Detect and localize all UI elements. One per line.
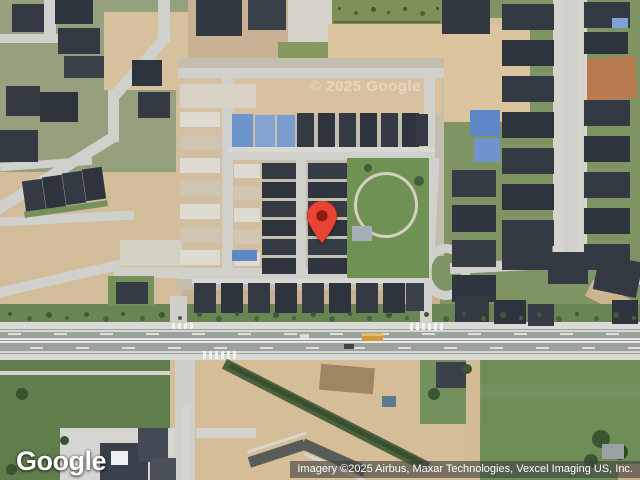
tree	[311, 312, 316, 317]
vehicle	[300, 334, 309, 338]
construction-slab	[234, 230, 260, 244]
street-segment	[196, 428, 256, 438]
townhouse-roof	[308, 258, 348, 274]
tree	[500, 312, 506, 318]
house-roof	[383, 283, 405, 313]
house-roof	[116, 282, 148, 304]
crosswalk-stripe	[440, 323, 443, 330]
curb-line	[182, 406, 189, 480]
crosswalk-stripe	[172, 323, 175, 329]
townhouse-roof	[318, 113, 335, 147]
tree	[16, 388, 28, 400]
vehicle	[344, 344, 354, 349]
tree	[414, 176, 424, 186]
townhouse-roof	[381, 113, 398, 147]
curb-line	[0, 371, 170, 375]
tree	[436, 7, 439, 10]
house-roof	[248, 283, 270, 313]
townhouse-roof	[308, 182, 348, 198]
townhouse-roof	[416, 114, 428, 146]
construction-slab	[180, 181, 220, 196]
house-roof	[58, 28, 100, 54]
tree	[481, 316, 486, 321]
tree	[428, 388, 440, 400]
field-stripe	[480, 384, 640, 398]
house-roof	[138, 92, 170, 118]
house-roof	[452, 170, 496, 197]
lane-dash	[30, 347, 43, 349]
building-roof	[150, 458, 176, 480]
lane-dash	[214, 347, 227, 349]
house-roof	[502, 112, 554, 138]
townhouse-roof	[262, 182, 296, 198]
lane-dash	[536, 347, 549, 349]
house-roof	[6, 86, 40, 116]
construction-slab	[234, 208, 260, 222]
brown-patch	[319, 364, 375, 395]
house-roof	[452, 240, 496, 267]
lane-center-line	[0, 338, 640, 340]
driveway-strip	[553, 0, 564, 256]
driveway-strip	[228, 147, 434, 152]
crosswalk-stripe	[422, 323, 425, 330]
blue-tarp-roof	[470, 110, 500, 136]
crosswalk-stripe	[416, 323, 419, 330]
house-roof	[548, 252, 588, 284]
crosswalk-stripe	[178, 323, 181, 329]
tree	[462, 364, 472, 374]
blue-tarp-roof	[277, 115, 295, 148]
crosswalk-stripe	[209, 351, 212, 359]
lane-edge-line	[0, 330, 640, 332]
house-roof	[584, 136, 630, 162]
crosswalk-stripe	[233, 351, 236, 359]
house-roof	[196, 0, 242, 36]
street-segment	[178, 68, 444, 78]
house-roof	[502, 220, 554, 246]
lane-dash	[192, 333, 205, 335]
lane-dash	[606, 333, 619, 335]
construction-slab	[234, 164, 260, 178]
crosswalk-stripe	[203, 351, 206, 359]
crosswalk-stripe	[184, 323, 187, 329]
tree	[462, 312, 466, 316]
lane-dash	[582, 347, 595, 349]
tree	[235, 312, 239, 316]
house-roof	[406, 283, 424, 311]
tree	[27, 316, 32, 321]
townhouse-roof	[339, 113, 356, 147]
building-roof	[138, 428, 168, 462]
house-roof	[356, 283, 378, 313]
house-roof	[584, 208, 630, 234]
townhouse-roof	[262, 258, 296, 274]
construction-slab	[180, 135, 220, 150]
concrete-pad	[120, 240, 182, 266]
house-roof	[248, 0, 286, 30]
construction-slab	[180, 112, 220, 127]
lane-dash	[168, 347, 181, 349]
google-logo[interactable]: Google	[16, 446, 106, 477]
townhouse-roof	[308, 163, 348, 179]
map-pin-head	[307, 201, 337, 243]
tree	[338, 7, 341, 10]
tree	[273, 312, 279, 318]
lane-dash	[560, 333, 573, 335]
tree	[371, 7, 376, 12]
lane-dash	[628, 347, 640, 349]
house-roof	[221, 283, 243, 313]
tree	[387, 11, 390, 14]
tree	[292, 316, 296, 320]
lane-dash	[146, 333, 159, 335]
lane-dash	[284, 333, 297, 335]
house-roof	[275, 283, 297, 313]
tree	[84, 312, 89, 317]
street-segment	[0, 34, 64, 43]
house-roof	[502, 40, 554, 66]
tree	[632, 316, 636, 320]
blue-tarp-roof	[232, 114, 253, 148]
blue-tarp-roof	[474, 138, 500, 162]
blue-tarp-roof	[612, 18, 628, 28]
lane-dash	[514, 333, 527, 335]
house-roof	[40, 92, 78, 122]
imagery-attribution: Imagery ©2025 Airbus, Maxar Technologies…	[290, 461, 640, 478]
house-roof	[502, 4, 554, 30]
crosswalk-stripe	[227, 351, 230, 359]
map-pin-dot	[316, 210, 327, 221]
house-roof	[442, 0, 490, 34]
house-roof	[584, 32, 628, 54]
lane-dash	[468, 333, 481, 335]
tree	[364, 164, 372, 172]
lane-dash	[330, 333, 343, 335]
house-roof	[0, 130, 38, 162]
tree	[8, 312, 12, 316]
lane-dash	[8, 333, 21, 335]
lane-dash	[444, 347, 457, 349]
construction-slab	[180, 250, 220, 265]
fence-line	[334, 21, 442, 23]
townhouse-roof	[262, 220, 296, 236]
house-roof	[132, 60, 162, 86]
house-roof	[452, 205, 496, 232]
construction-slab	[180, 227, 220, 242]
construction-slab	[234, 186, 260, 200]
lane-edge-line	[0, 351, 640, 353]
map-canvas[interactable]: © 2025 Google Google Imagery ©2025 Airbu…	[0, 0, 640, 480]
house-roof	[64, 56, 104, 78]
tree	[254, 316, 259, 321]
house-roof	[494, 300, 526, 324]
crosswalk-stripe	[434, 323, 437, 330]
construction-slab	[180, 204, 220, 219]
house-roof	[502, 76, 554, 102]
tree	[519, 316, 523, 320]
tree	[443, 316, 449, 322]
house-roof	[12, 4, 44, 32]
tree	[65, 316, 69, 320]
construction-slab	[180, 158, 220, 173]
house-roof	[329, 283, 351, 313]
lane-dash	[306, 347, 319, 349]
shed-roof	[602, 444, 624, 459]
google-watermark: © 2025 Google	[310, 78, 490, 95]
street-segment	[296, 155, 306, 277]
tree	[216, 316, 222, 322]
tree	[103, 316, 109, 322]
shed-roof	[382, 396, 396, 407]
townhouse-roof	[82, 167, 106, 201]
house-roof	[584, 100, 630, 126]
house-roof	[502, 148, 554, 174]
tree	[46, 312, 52, 318]
lane-dash	[238, 333, 251, 335]
tree	[420, 11, 425, 16]
crosswalk-stripe	[190, 323, 193, 329]
lane-dash	[100, 333, 113, 335]
lane-center-line	[0, 341, 640, 343]
blue-tarp-roof	[232, 250, 257, 261]
tree	[424, 312, 429, 317]
house-roof	[584, 172, 630, 198]
lane-dash	[422, 333, 435, 335]
house-roof	[502, 184, 554, 210]
house-roof	[302, 283, 324, 313]
rooftop-unit	[111, 451, 128, 465]
townhouse-roof	[360, 113, 377, 147]
house-roof	[55, 0, 93, 24]
crosswalk-stripe	[215, 351, 218, 359]
townhouse-roof	[262, 239, 296, 255]
lane-dash	[54, 333, 67, 335]
construction-slab	[180, 84, 256, 108]
blue-tarp-roof	[255, 115, 275, 148]
crosswalk-stripe	[428, 323, 431, 330]
townhouse-roof	[262, 163, 296, 179]
house-roof	[194, 283, 216, 313]
lane-dash	[398, 347, 411, 349]
house-roof	[502, 246, 552, 270]
park-pavilion-roof	[352, 226, 372, 241]
tree	[60, 436, 69, 445]
school-bus-top	[362, 333, 383, 336]
crosswalk-stripe	[410, 323, 413, 330]
lane-dash	[260, 347, 273, 349]
townhouse-roof	[262, 201, 296, 217]
map-pin[interactable]	[307, 201, 337, 243]
townhouse-roof	[297, 113, 314, 147]
lane-dash	[76, 347, 89, 349]
street-segment	[564, 0, 577, 258]
lane-dash	[122, 347, 135, 349]
lane-dash	[490, 347, 503, 349]
crosswalk-stripe	[221, 351, 224, 359]
